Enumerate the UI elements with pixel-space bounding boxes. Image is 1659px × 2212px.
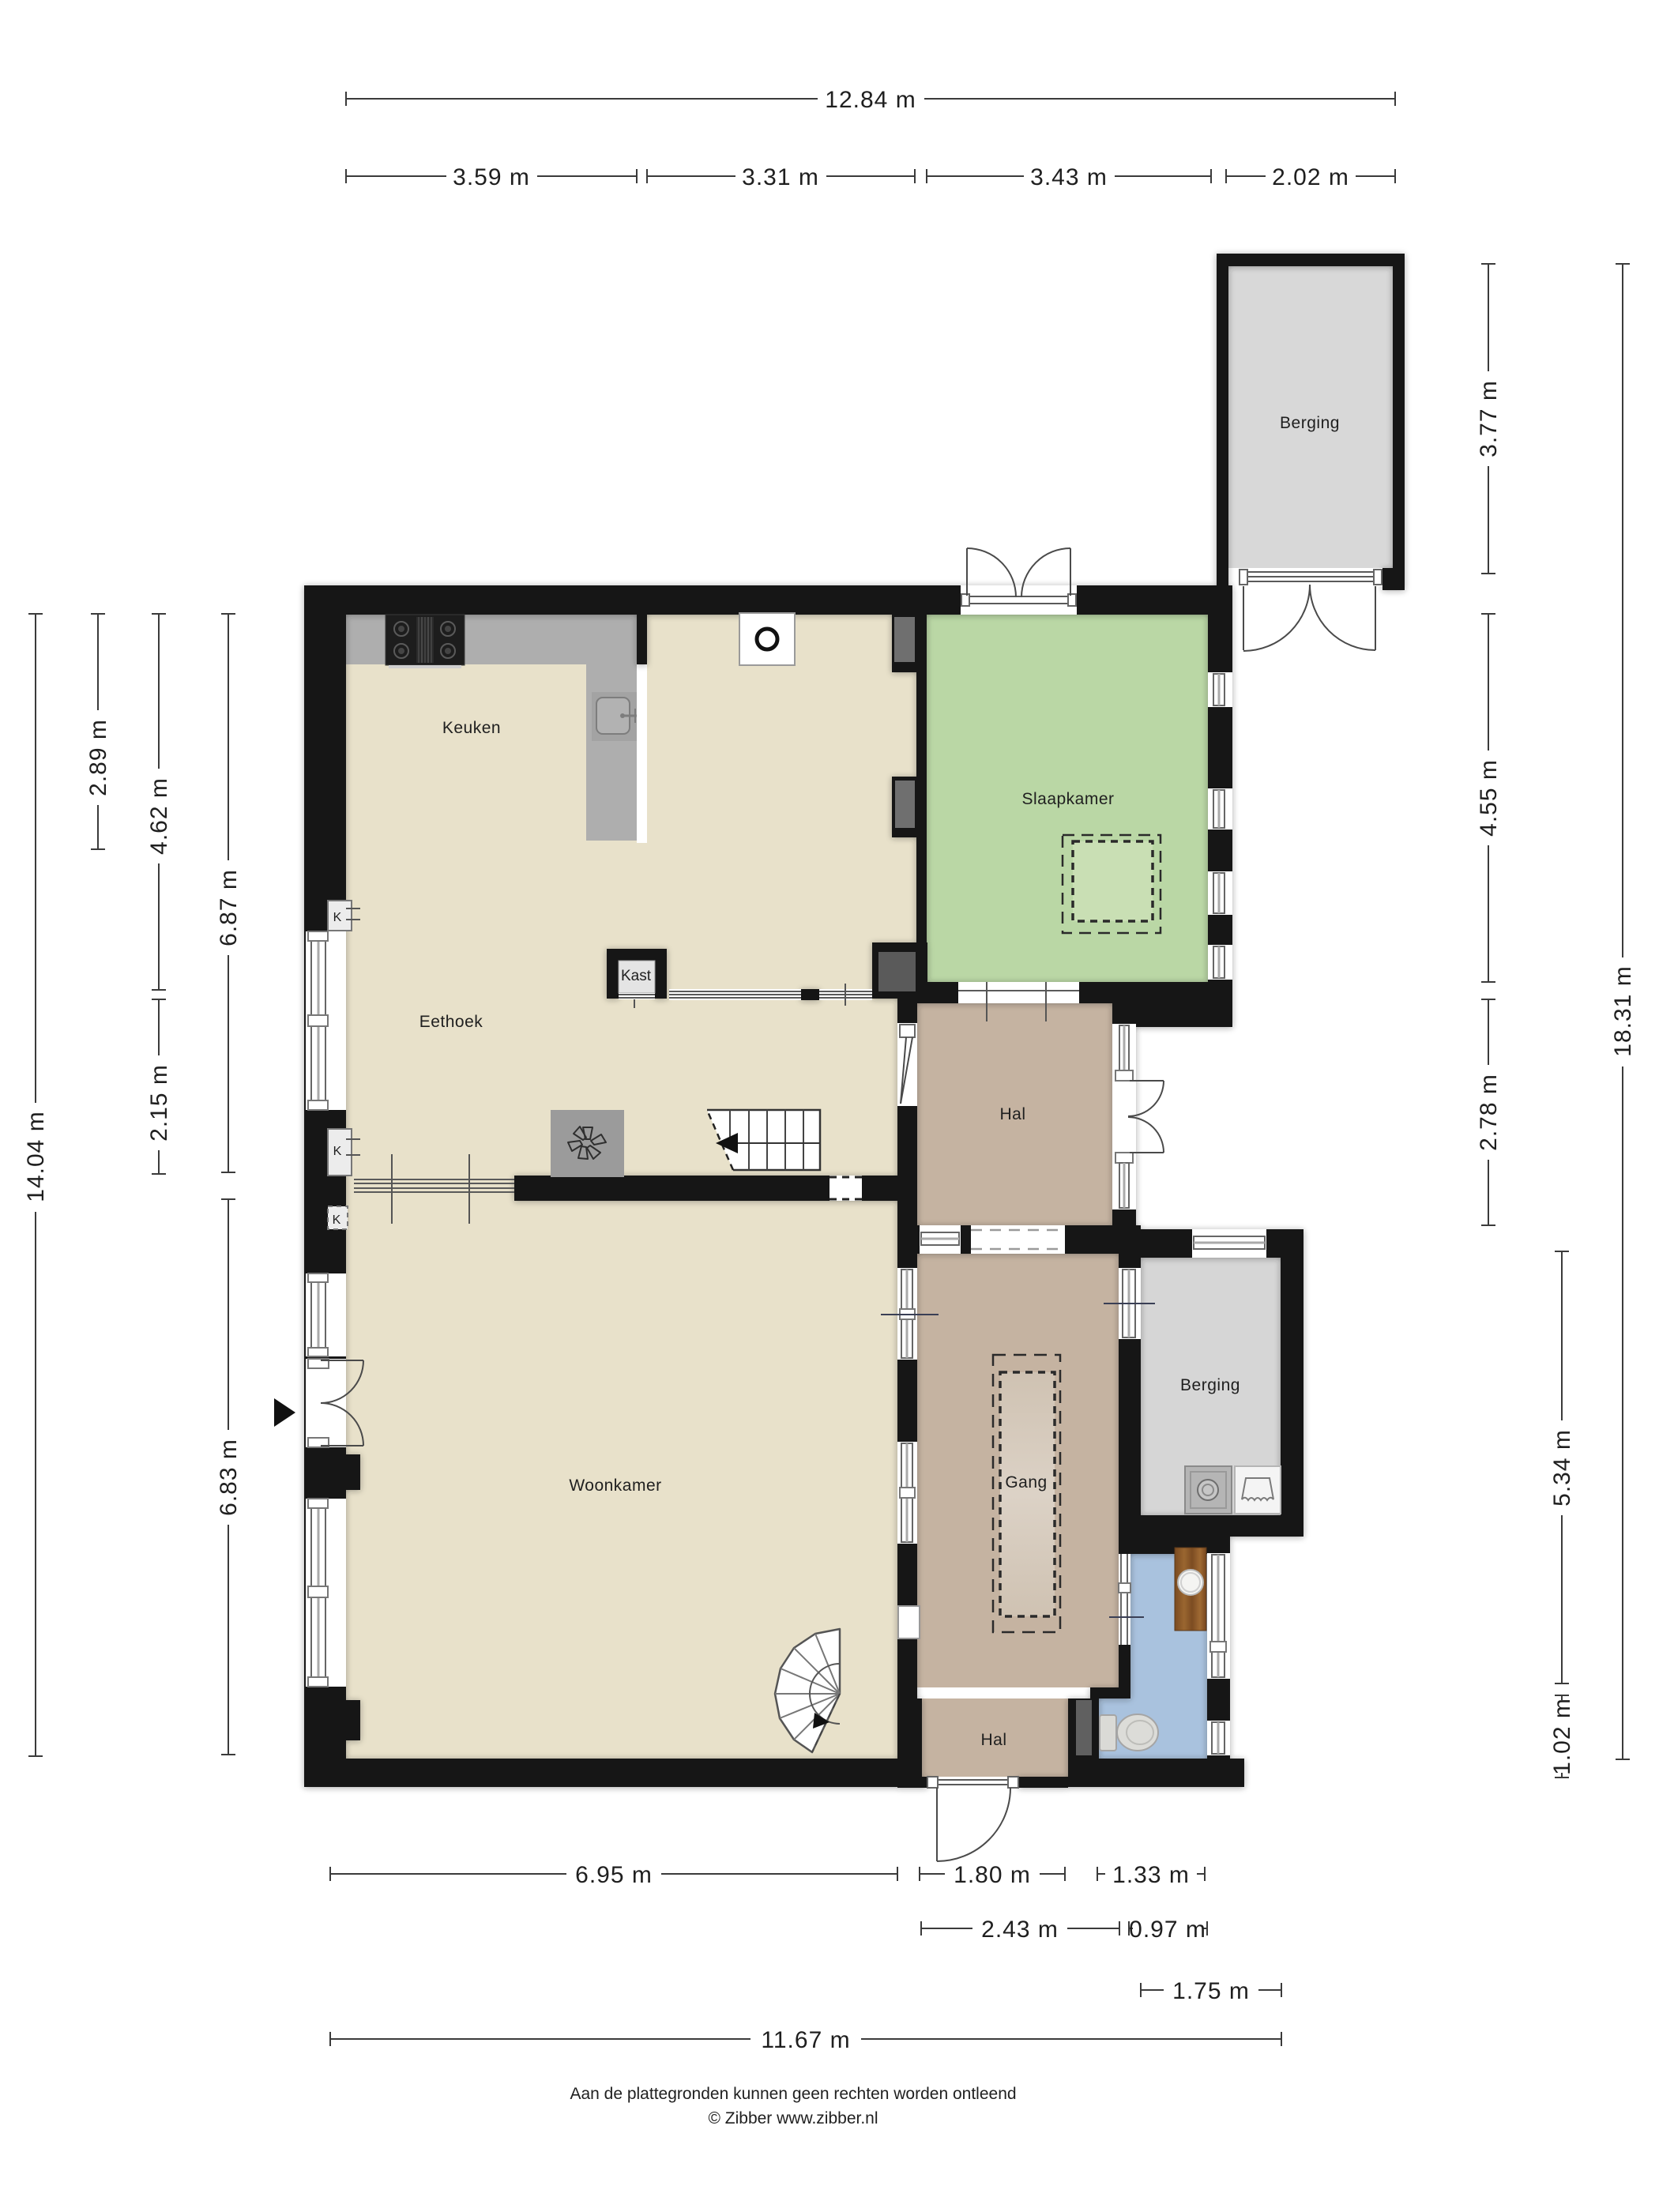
svg-text:© Zibber www.zibber.nl: © Zibber www.zibber.nl	[708, 2109, 878, 2127]
svg-text:3.59 m: 3.59 m	[453, 164, 530, 190]
svg-text:4.62 m: 4.62 m	[146, 777, 172, 855]
svg-text:1.75 m: 1.75 m	[1172, 1978, 1250, 2004]
svg-text:Eethoek: Eethoek	[419, 1013, 483, 1031]
svg-text:Slaapkamer: Slaapkamer	[1021, 790, 1114, 808]
svg-text:2.02 m: 2.02 m	[1272, 164, 1349, 190]
svg-text:6.95 m: 6.95 m	[575, 1862, 653, 1888]
svg-text:1.80 m: 1.80 m	[954, 1862, 1031, 1888]
svg-text:2.78 m: 2.78 m	[1476, 1074, 1502, 1151]
svg-text:6.83 m: 6.83 m	[216, 1439, 242, 1516]
svg-text:6.87 m: 6.87 m	[216, 869, 242, 946]
svg-text:3.43 m: 3.43 m	[1030, 164, 1108, 190]
svg-text:0.97 m: 0.97 m	[1129, 1917, 1206, 1943]
svg-text:1.33 m: 1.33 m	[1112, 1862, 1190, 1888]
svg-text:2.15 m: 2.15 m	[146, 1064, 172, 1142]
svg-text:Berging: Berging	[1180, 1376, 1240, 1394]
svg-text:Hal: Hal	[999, 1105, 1025, 1123]
svg-text:Keuken: Keuken	[442, 719, 501, 737]
svg-text:Berging: Berging	[1280, 414, 1340, 432]
svg-text:Hal: Hal	[980, 1731, 1006, 1749]
svg-text:3.77 m: 3.77 m	[1476, 380, 1502, 457]
svg-text:5.34 m: 5.34 m	[1549, 1429, 1575, 1507]
svg-text:3.31 m: 3.31 m	[742, 164, 819, 190]
svg-text:Kast: Kast	[621, 968, 652, 984]
svg-text:18.31 m: 18.31 m	[1610, 965, 1636, 1056]
svg-text:1.02 m: 1.02 m	[1549, 1698, 1575, 1775]
svg-text:2.89 m: 2.89 m	[85, 719, 111, 796]
svg-text:14.04 m: 14.04 m	[23, 1111, 49, 1202]
svg-text:12.84 m: 12.84 m	[825, 87, 916, 113]
svg-text:2.43 m: 2.43 m	[981, 1917, 1059, 1943]
svg-text:K: K	[333, 1145, 342, 1158]
svg-text:K: K	[333, 911, 342, 924]
svg-text:K: K	[333, 1213, 341, 1227]
svg-text:11.67 m: 11.67 m	[761, 2027, 850, 2053]
svg-text:Gang: Gang	[1005, 1473, 1047, 1492]
svg-text:Aan de plattegronden kunnen ge: Aan de plattegronden kunnen geen rechten…	[570, 2085, 1016, 2103]
svg-text:Woonkamer: Woonkamer	[569, 1477, 661, 1495]
svg-text:4.55 m: 4.55 m	[1476, 759, 1502, 837]
